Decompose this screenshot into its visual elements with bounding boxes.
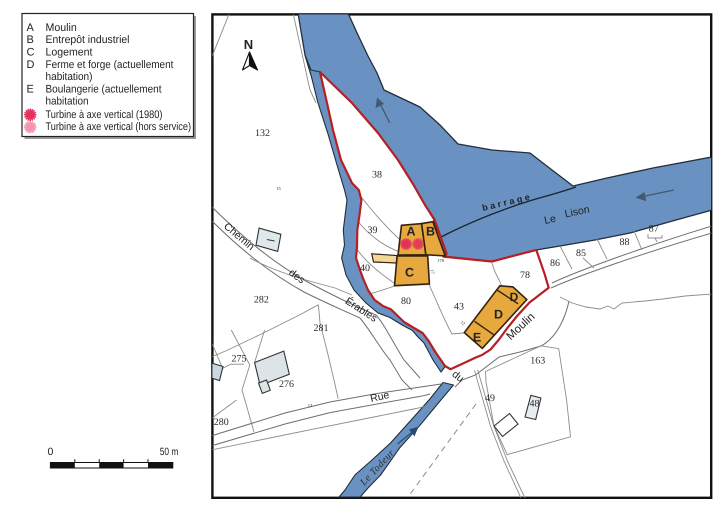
svg-text:Moulin: Moulin	[46, 22, 77, 34]
svg-text:D: D	[494, 308, 503, 322]
svg-text:C: C	[27, 47, 35, 59]
svg-text:N: N	[244, 37, 253, 52]
svg-text:A: A	[27, 22, 35, 34]
svg-text:39: 39	[368, 225, 378, 236]
svg-text:E: E	[27, 83, 34, 95]
svg-text:281: 281	[314, 323, 329, 334]
svg-text:48: 48	[530, 399, 540, 410]
svg-text:D: D	[510, 290, 519, 304]
svg-text:Ferme et forge (actuellement: Ferme et forge (actuellement	[46, 59, 174, 71]
svg-text:178: 178	[437, 258, 445, 263]
svg-text:40: 40	[360, 263, 370, 274]
svg-text:habitation): habitation)	[46, 71, 93, 83]
svg-text:132: 132	[255, 128, 270, 139]
svg-text:163: 163	[530, 356, 545, 367]
svg-text:Logement: Logement	[46, 47, 93, 59]
svg-text:49: 49	[485, 393, 495, 404]
svg-text:50 m: 50 m	[160, 446, 179, 458]
svg-text:B: B	[426, 225, 435, 239]
svg-text:80: 80	[401, 296, 411, 307]
svg-text:habitation: habitation	[46, 96, 89, 108]
svg-text:13: 13	[308, 403, 313, 408]
svg-text:43: 43	[454, 302, 464, 313]
svg-text:Turbine à axe vertical (hors s: Turbine à axe vertical (hors service)	[46, 121, 192, 133]
svg-text:85: 85	[576, 248, 586, 259]
svg-text:78: 78	[520, 270, 530, 281]
svg-text:B: B	[27, 34, 34, 46]
svg-text:38: 38	[372, 170, 382, 181]
svg-text:D: D	[27, 59, 35, 71]
svg-text:275: 275	[232, 354, 247, 365]
svg-text:A: A	[406, 225, 415, 239]
svg-text:276: 276	[279, 379, 294, 390]
svg-text:88: 88	[620, 237, 630, 248]
svg-text:15: 15	[276, 186, 281, 191]
svg-text:282: 282	[254, 294, 269, 305]
svg-text:E: E	[473, 330, 481, 344]
svg-text:Turbine à axe vertical (1980): Turbine à axe vertical (1980)	[46, 109, 163, 121]
svg-text:Boulangerie (actuellement: Boulangerie (actuellement	[46, 83, 162, 95]
svg-text:86: 86	[550, 258, 560, 269]
svg-text:0: 0	[48, 446, 54, 458]
svg-text:Entrepôt industriel: Entrepôt industriel	[46, 34, 130, 46]
svg-text:87: 87	[649, 224, 659, 235]
svg-text:280: 280	[214, 417, 229, 428]
svg-text:C: C	[405, 266, 414, 280]
